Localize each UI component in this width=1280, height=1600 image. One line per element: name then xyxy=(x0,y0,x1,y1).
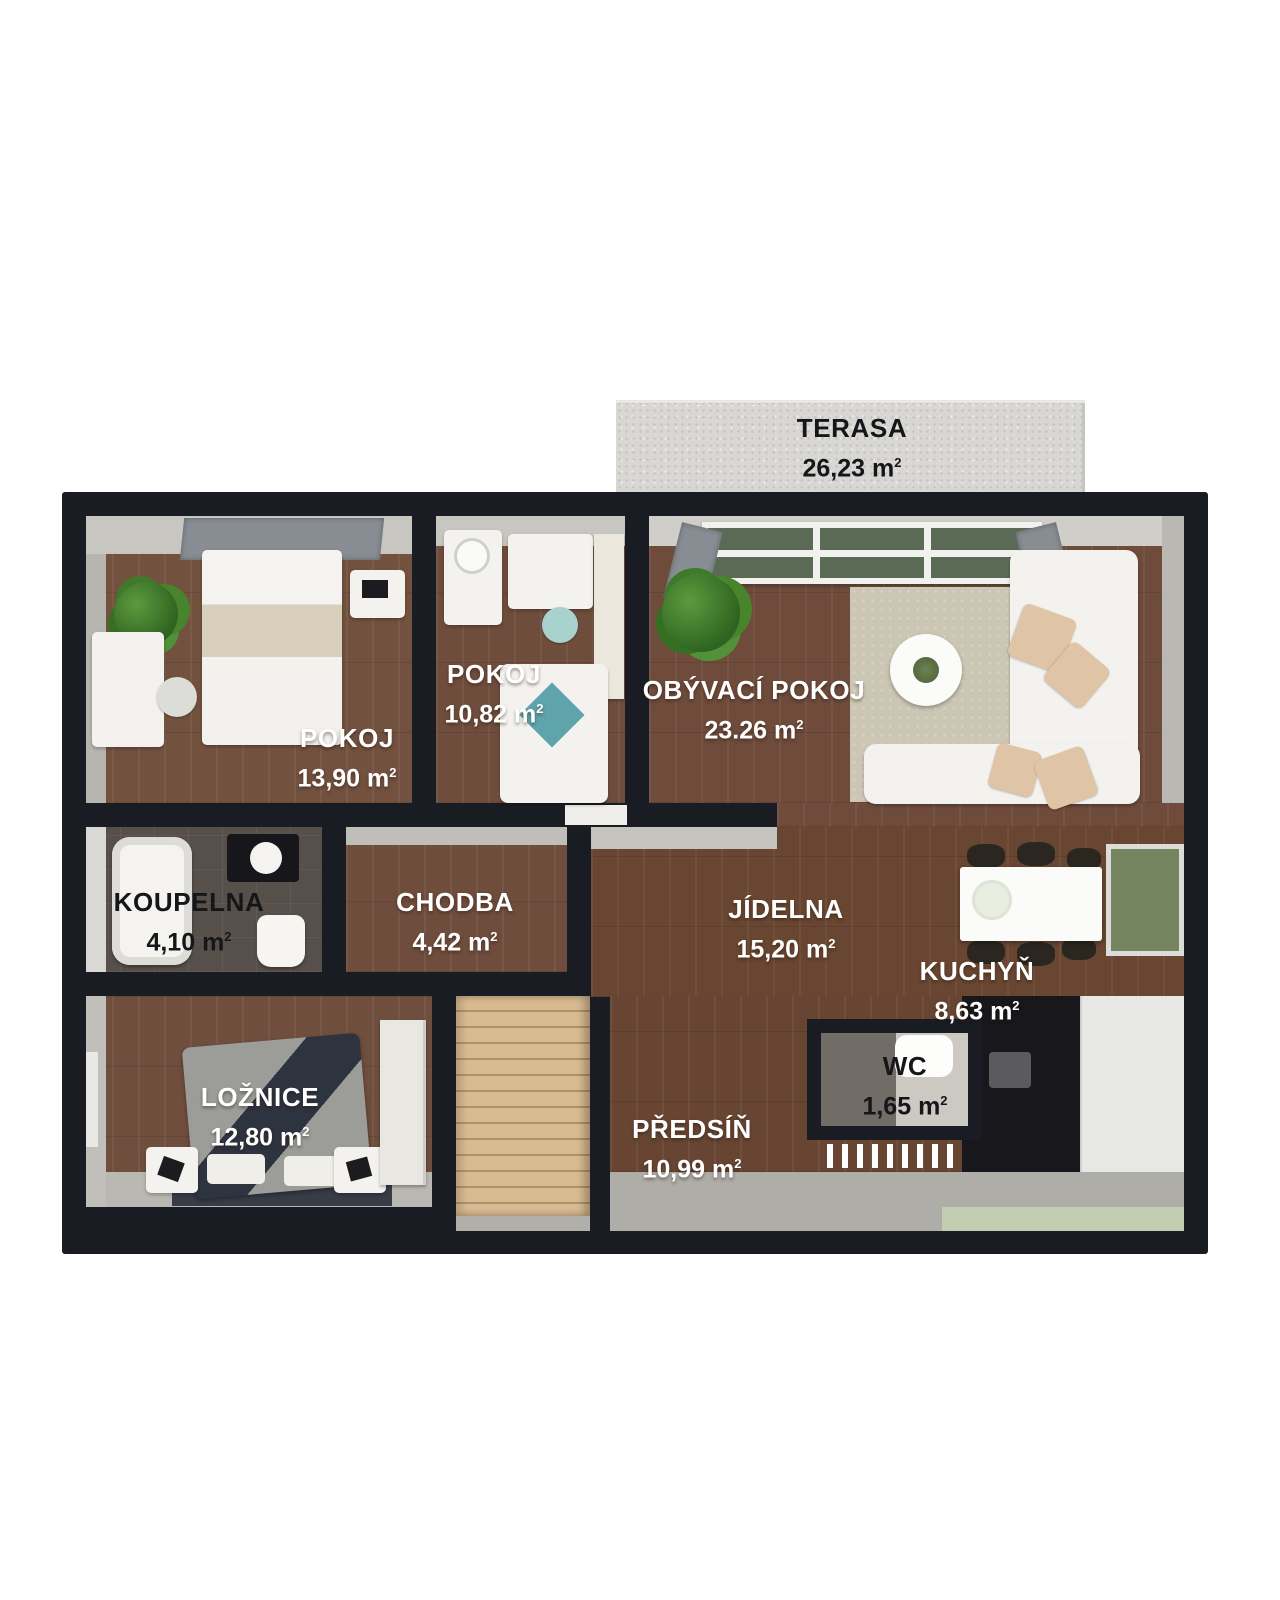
window-kitchen-right xyxy=(1106,844,1184,956)
dining-chair xyxy=(1017,842,1055,866)
wardrobe xyxy=(380,1020,426,1185)
green-tile-floor xyxy=(942,1207,1184,1231)
washer-door-icon xyxy=(250,842,282,874)
room-label-terasa: TERASA 26,23 m2 xyxy=(797,415,908,481)
kitchen-cabinets-white xyxy=(1080,996,1184,1172)
terrace-window xyxy=(702,522,1042,584)
wall-face-koupelna-left xyxy=(86,827,106,972)
plant-icon xyxy=(662,574,740,652)
bed-pillow xyxy=(207,1154,265,1184)
floorplan-canvas: TERASA 26,23 m2 xyxy=(0,0,1280,1600)
dining-chair xyxy=(1017,942,1055,966)
bed-pokoj-1 xyxy=(202,550,342,745)
toilet xyxy=(257,915,305,967)
dining-chair xyxy=(1062,938,1096,960)
staircase xyxy=(456,996,590,1216)
open-passage-living-dining xyxy=(777,803,1184,827)
terrace-area: TERASA 26,23 m2 xyxy=(616,400,1085,499)
window-pane xyxy=(820,557,925,579)
wall-face-obyvaci-right xyxy=(1162,516,1184,803)
window-pane xyxy=(708,557,813,579)
door-chodba xyxy=(565,805,627,825)
stair-railing xyxy=(827,1144,957,1168)
wall-face-chodba-top xyxy=(346,827,567,845)
plate-icon xyxy=(972,880,1012,920)
window-pane xyxy=(820,528,925,550)
wall-face-jidelna-top xyxy=(591,827,777,849)
wc-room xyxy=(807,1019,982,1140)
chair-pokoj-1 xyxy=(157,677,197,717)
room-area: 26,23 m2 xyxy=(797,450,908,481)
dining-chair xyxy=(967,940,1005,964)
bathtub xyxy=(112,837,192,965)
kitchen-sink xyxy=(989,1052,1031,1088)
room-floor-chodba xyxy=(346,827,567,972)
laptop-icon xyxy=(362,580,388,598)
mirror-icon xyxy=(454,538,490,574)
window-pane xyxy=(708,528,813,550)
table-plant-icon xyxy=(913,657,939,683)
desk-pokoj-2 xyxy=(508,534,593,609)
desk-pokoj-1 xyxy=(92,632,164,747)
area-superscript: 2 xyxy=(894,455,901,470)
chair-pokoj-2 xyxy=(542,607,578,643)
wc-sink xyxy=(895,1035,953,1077)
area-value: 26,23 m xyxy=(803,454,895,482)
room-name: TERASA xyxy=(797,415,908,442)
wc-floor-dark xyxy=(821,1033,896,1126)
dining-chair xyxy=(967,844,1005,868)
floor-below-stairs xyxy=(456,1216,590,1231)
floorplan-walls: POKOJ 13,90 m2 POKOJ 10,82 m2 OBÝVACÍ PO… xyxy=(62,492,1208,1254)
window-loznice-left xyxy=(86,1052,98,1147)
